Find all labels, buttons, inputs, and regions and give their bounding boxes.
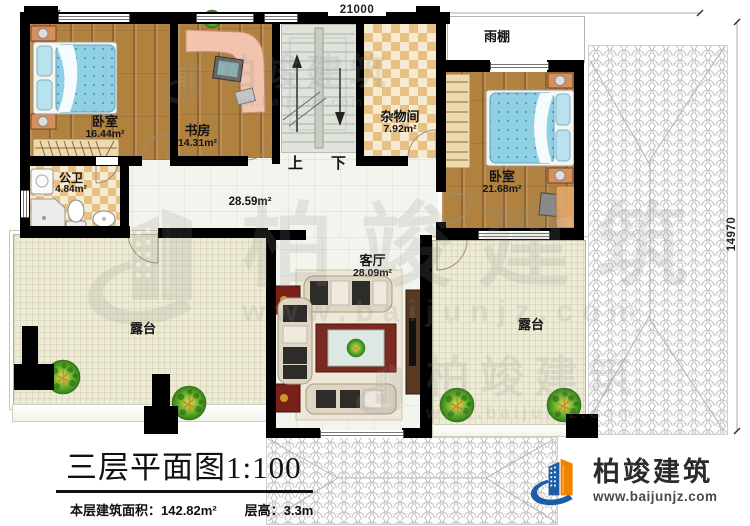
hall-area: 28.59m² bbox=[212, 196, 288, 208]
wall bbox=[420, 235, 432, 438]
bedroom1-area: 16.44m² bbox=[60, 129, 150, 140]
wall bbox=[436, 12, 446, 165]
bathroom-name: 公卫 bbox=[40, 172, 102, 185]
terrace-right-edge bbox=[432, 424, 588, 437]
brand-name: 柏竣建筑 bbox=[593, 458, 718, 486]
brand-logo: 柏竣建筑 www.baijunjz.com bbox=[527, 451, 718, 511]
storage-floor bbox=[364, 24, 436, 158]
bedroom2-floor bbox=[442, 72, 574, 230]
room-label-canopy: 雨棚 bbox=[455, 30, 539, 44]
stairs-down-label: 下 bbox=[331, 152, 346, 173]
dimension-width-label: 21000 bbox=[328, 4, 386, 16]
window bbox=[320, 430, 404, 438]
terrace-left-name: 露台 bbox=[112, 322, 174, 336]
stairs-up-label: 上 bbox=[288, 152, 303, 173]
wall bbox=[266, 230, 306, 240]
wall bbox=[266, 230, 276, 438]
room-label-study: 书房 14.31m² bbox=[150, 124, 245, 149]
dimension-height-label: 14970 bbox=[726, 212, 738, 256]
room-label-storage: 杂物间 7.92m² bbox=[356, 110, 444, 135]
wall bbox=[266, 428, 320, 438]
roof-right bbox=[588, 45, 728, 435]
room-label-bathroom: 公卫 4.84m² bbox=[40, 172, 102, 195]
brand-url: www.baijunjz.com bbox=[593, 489, 718, 504]
title-block: 三层平面图1:100 本层建筑面积：142.82m² 层高：3.3m bbox=[56, 442, 313, 519]
bedroom1-name: 卧室 bbox=[60, 115, 150, 129]
column bbox=[14, 364, 54, 390]
window bbox=[490, 62, 549, 70]
column bbox=[566, 414, 598, 438]
storage-name: 杂物间 bbox=[356, 110, 444, 124]
room-label-living: 客厅 28.09m² bbox=[330, 254, 415, 279]
wall bbox=[158, 228, 268, 238]
window bbox=[21, 190, 29, 218]
window bbox=[264, 14, 298, 22]
window bbox=[478, 231, 550, 239]
room-label-bedroom2: 卧室 21.68m² bbox=[462, 170, 542, 195]
terrace-right-name: 露台 bbox=[500, 318, 562, 332]
floor-plan-title: 三层平面图 bbox=[66, 450, 226, 485]
room-label-hall: 28.59m² bbox=[212, 196, 288, 208]
floor-area-label: 本层建筑面积：142.82m² bbox=[70, 500, 217, 519]
floor-plan-canvas: 卧室 16.44m² 书房 14.31m² 杂物间 7.92m² 雨棚 卧室 2… bbox=[0, 0, 750, 526]
floor-height-label: 层高：3.3m bbox=[245, 500, 314, 519]
scale-label: 1:100 bbox=[226, 450, 302, 485]
wall bbox=[272, 24, 280, 164]
living-name: 客厅 bbox=[330, 254, 415, 268]
stairwell-floor bbox=[281, 24, 358, 153]
window bbox=[196, 14, 254, 22]
door-opening bbox=[96, 157, 118, 165]
storage-area: 7.92m² bbox=[356, 124, 444, 135]
room-label-bedroom1: 卧室 16.44m² bbox=[60, 115, 150, 140]
wall bbox=[170, 156, 248, 166]
study-area: 14.31m² bbox=[150, 138, 245, 149]
study-name: 书房 bbox=[150, 124, 245, 138]
room-label-terrace-right: 露台 bbox=[500, 318, 562, 332]
wall bbox=[20, 226, 130, 238]
room-label-terrace-left: 露台 bbox=[112, 322, 174, 336]
terrace-left-edge bbox=[12, 404, 270, 422]
bedroom2-area: 21.68m² bbox=[462, 184, 542, 195]
wall bbox=[436, 165, 446, 192]
wall bbox=[436, 60, 490, 72]
wall bbox=[120, 156, 129, 236]
canopy-name: 雨棚 bbox=[455, 30, 539, 44]
terrace-right-floor bbox=[432, 240, 586, 426]
wall bbox=[574, 60, 584, 240]
bedroom2-name: 卧室 bbox=[462, 170, 542, 184]
window bbox=[58, 14, 130, 22]
wall bbox=[356, 156, 408, 166]
wall bbox=[402, 428, 432, 438]
living-area: 28.09m² bbox=[330, 268, 415, 279]
column bbox=[144, 406, 178, 434]
wall bbox=[356, 24, 364, 164]
brand-glyph-icon bbox=[527, 451, 587, 511]
bathroom-area: 4.84m² bbox=[40, 185, 102, 196]
